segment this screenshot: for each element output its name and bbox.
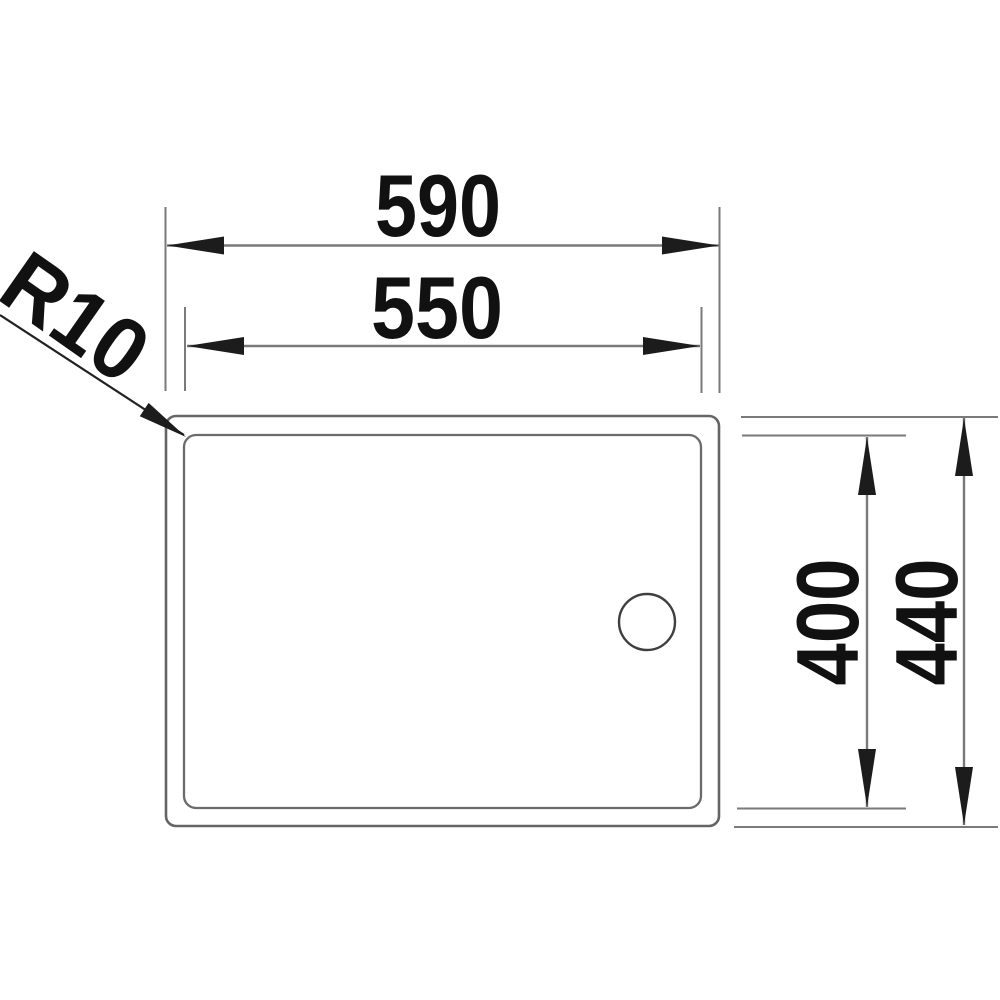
drain-hole [619,594,675,650]
arrowhead-left-icon [167,237,224,255]
technical-drawing-canvas: 590 550 400 440 [0,0,1000,1000]
arrowhead-down-icon [955,767,973,825]
corner-radius-label: R10 [0,232,167,402]
sink-dimension-diagram: 590 550 400 440 [0,0,1000,1000]
arrowhead-up-icon [858,437,876,495]
arrowhead-right-icon [643,337,700,355]
arrowhead-left-icon [187,337,244,355]
inner-height-label: 400 [778,559,877,686]
outer-height-label: 440 [877,559,976,686]
arrowhead-down-icon [858,749,876,807]
sink-body [166,416,719,826]
arrowhead-up-icon [955,418,973,476]
dimension-inner-width: 550 [185,258,702,393]
arrowhead-right-icon [662,237,719,255]
inner-width-label: 550 [371,258,503,357]
corner-radius-callout: R10 [0,232,186,437]
outer-width-label: 590 [375,156,501,255]
